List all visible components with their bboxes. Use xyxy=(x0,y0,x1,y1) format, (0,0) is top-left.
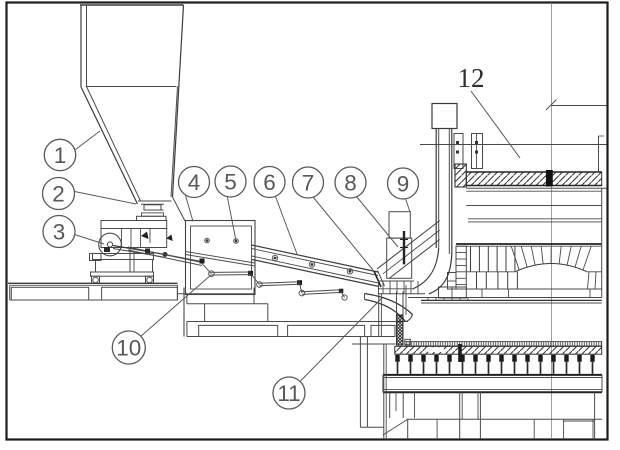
svg-text:7: 7 xyxy=(302,170,315,195)
svg-text:6: 6 xyxy=(263,170,276,195)
svg-text:5: 5 xyxy=(224,169,237,194)
svg-text:9: 9 xyxy=(397,171,410,196)
svg-text:1: 1 xyxy=(54,143,67,168)
svg-text:2: 2 xyxy=(52,181,65,206)
svg-text:12: 12 xyxy=(458,63,485,93)
svg-text:11: 11 xyxy=(277,381,300,406)
svg-text:4: 4 xyxy=(188,170,201,195)
svg-text:10: 10 xyxy=(116,335,141,360)
svg-text:8: 8 xyxy=(344,170,357,195)
svg-text:3: 3 xyxy=(53,219,66,244)
